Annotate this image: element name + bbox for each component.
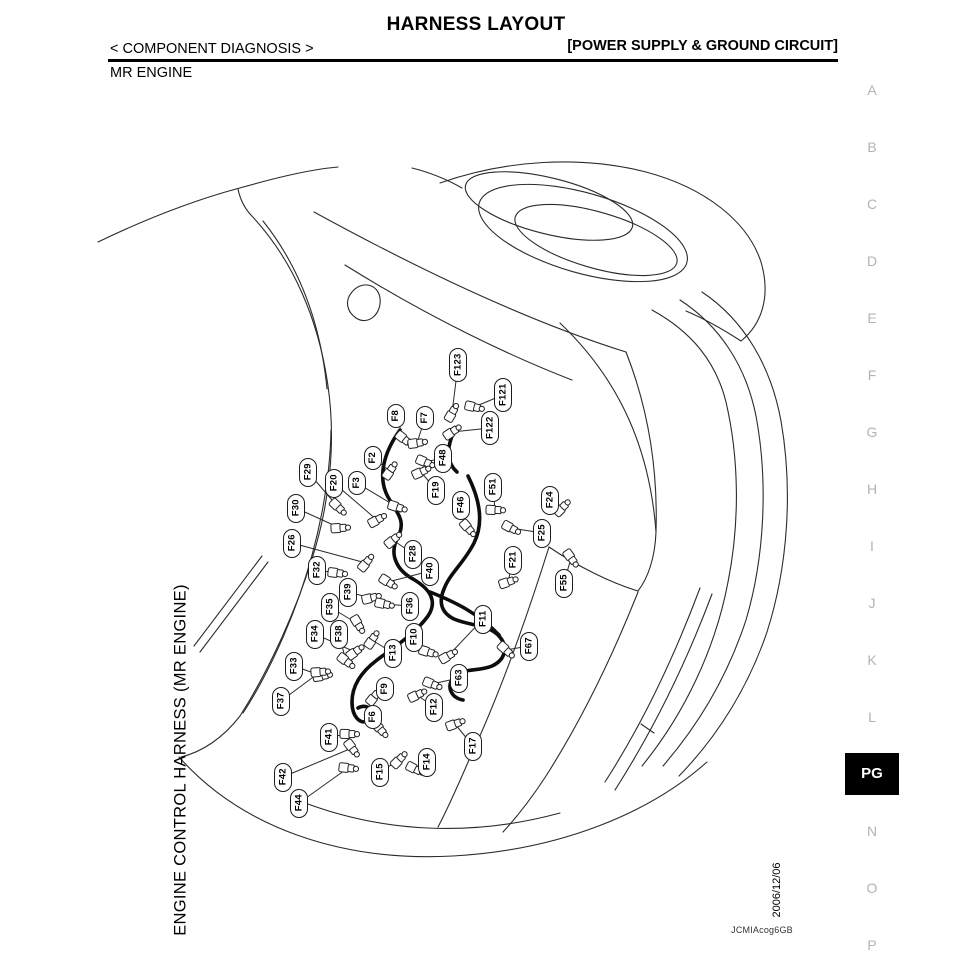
car-outline <box>626 352 656 532</box>
connector-glyph-f24 <box>552 497 572 517</box>
connector-glyph-f44 <box>339 763 359 774</box>
car-outline <box>263 221 327 389</box>
harness-caption: ENGINE CONTROL HARNESS (MR ENGINE) <box>172 584 191 936</box>
connector-glyph-f6 <box>371 719 391 740</box>
connector-glyph-f25 <box>501 520 523 537</box>
connector-glyph-f123 <box>444 402 462 423</box>
connector-glyph-f40 <box>378 573 399 591</box>
connector-glyph-f42 <box>343 738 362 759</box>
car-outline <box>300 801 560 828</box>
harness-cable <box>449 436 457 472</box>
connector-glyph-f32 <box>328 567 349 578</box>
car-outline <box>663 300 763 766</box>
connector-glyph-f26 <box>357 552 376 573</box>
connector-glyph-f13 <box>363 629 381 650</box>
car-outline <box>200 562 268 652</box>
manual-page: HARNESS LAYOUT < COMPONENT DIAGNOSIS > [… <box>0 0 976 976</box>
deck-vent-oval <box>468 165 698 301</box>
label-leader-line <box>299 768 348 803</box>
label-leader-line <box>315 634 355 652</box>
connector-glyph-f14 <box>405 761 427 778</box>
deck-vent-oval <box>459 158 639 254</box>
car-outline <box>345 265 572 380</box>
car-outline <box>503 592 638 832</box>
connector-glyph-f17 <box>445 716 466 731</box>
connector-glyph-f7 <box>407 437 428 449</box>
connector-glyph-f29 <box>328 498 348 518</box>
connector-glyph-f121 <box>464 401 485 414</box>
connector-glyph-f36 <box>374 598 395 611</box>
connector-glyph-f9 <box>365 686 384 707</box>
label-leader-line <box>292 543 366 563</box>
car-outline <box>440 162 765 341</box>
label-leader-line <box>455 724 473 746</box>
connector-glyph-f51 <box>486 505 506 515</box>
connector-glyph-f35 <box>350 614 368 635</box>
harness-diagram <box>0 0 976 976</box>
car-outline <box>179 757 707 857</box>
figure-code: JCMIAcog6GB <box>731 925 793 935</box>
revision-date: 2006/12/06 <box>771 862 783 917</box>
car-outline <box>347 285 380 321</box>
label-leader-line <box>388 571 430 582</box>
label-leader-line <box>334 483 377 520</box>
car-outline <box>238 189 250 214</box>
car-outline <box>314 212 626 352</box>
car-outline <box>641 724 654 733</box>
car-outline <box>615 594 712 790</box>
connector-glyph-f30 <box>331 523 351 533</box>
car-outline <box>194 556 262 646</box>
car-outline <box>679 292 787 776</box>
connector-glyph-f11 <box>438 647 459 665</box>
connector-glyph-f46 <box>459 518 479 539</box>
car-outline <box>438 547 549 827</box>
connector-glyph-f10 <box>418 645 439 659</box>
connector-glyph-f41 <box>340 729 360 738</box>
connector-glyph-f55 <box>562 548 581 569</box>
car-outline <box>98 167 338 242</box>
car-outline <box>240 214 331 716</box>
